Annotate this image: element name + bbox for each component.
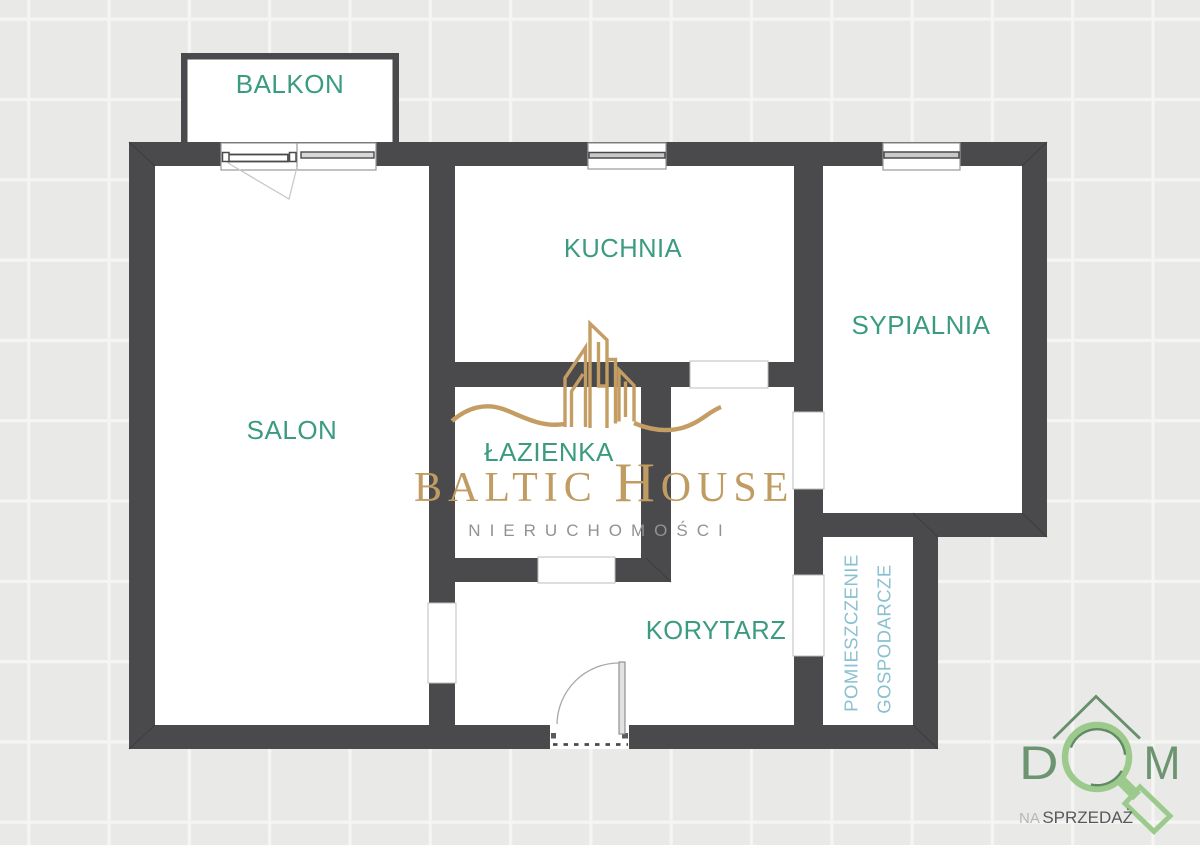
svg-text:KORYTARZ: KORYTARZ (646, 617, 787, 645)
svg-text:BALKON: BALKON (236, 69, 345, 99)
svg-text:SALON: SALON (247, 415, 338, 445)
svg-text:D: D (1019, 737, 1059, 790)
svg-text:POMIESZCZENIE: POMIESZCZENIE (841, 554, 862, 712)
svg-text:GOSPODARCZE: GOSPODARCZE (874, 564, 895, 713)
svg-text:SYPIALNIA: SYPIALNIA (852, 310, 991, 340)
svg-text:NASPRZEDAŻ: NASPRZEDAŻ (1019, 808, 1133, 827)
svg-text:M: M (1144, 737, 1181, 790)
svg-text:ŁAZIENKA: ŁAZIENKA (484, 437, 614, 467)
svg-text:KUCHNIA: KUCHNIA (564, 235, 682, 263)
svg-text:NIERUCHOMOŚCI: NIERUCHOMOŚCI (468, 521, 731, 540)
